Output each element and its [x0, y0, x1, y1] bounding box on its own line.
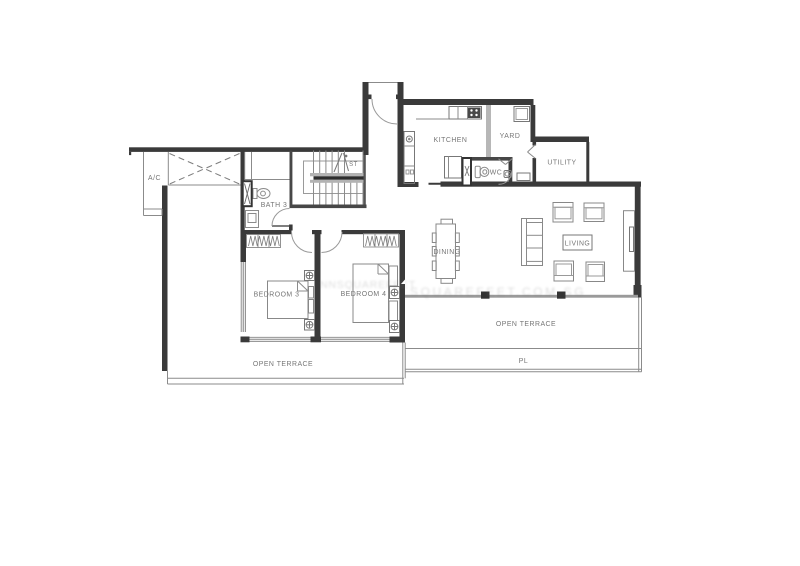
svg-text:OPEN TERRACE: OPEN TERRACE — [253, 361, 313, 368]
svg-text:LIVING: LIVING — [565, 241, 591, 248]
svg-text:NNSQUAREFEET: NNSQUAREFEET — [320, 279, 416, 291]
svg-text:UTILITY: UTILITY — [547, 160, 576, 167]
svg-text:KITCHEN: KITCHEN — [434, 137, 468, 144]
svg-text:A/C: A/C — [148, 175, 161, 182]
svg-text:BEDROOM 4: BEDROOM 4 — [341, 291, 387, 298]
svg-text:BATH 3: BATH 3 — [261, 202, 288, 209]
svg-text:YARD: YARD — [500, 133, 521, 140]
svg-text:BEDROOM 3: BEDROOM 3 — [254, 292, 300, 299]
svg-text:DINING: DINING — [433, 249, 460, 256]
svg-text:ST: ST — [349, 162, 358, 168]
svg-text:OPEN TERRACE: OPEN TERRACE — [496, 321, 556, 328]
svg-text:PL: PL — [519, 358, 528, 365]
svg-text:WC: WC — [490, 170, 502, 177]
svg-text:SQUAREFEET.COM.SG: SQUAREFEET.COM.SG — [410, 285, 586, 299]
